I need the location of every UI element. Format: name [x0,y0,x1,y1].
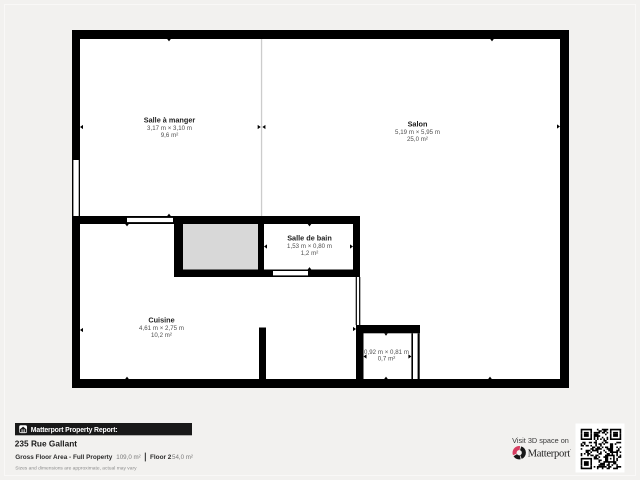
svg-text:10,2 m²: 10,2 m² [151,332,172,339]
svg-text:109,0 m²: 109,0 m² [116,454,140,461]
svg-text:0,7 m²: 0,7 m² [378,356,396,363]
svg-text:9,6 m²: 9,6 m² [161,132,179,139]
svg-text:Matterport Property Report:: Matterport Property Report: [31,427,118,434]
svg-text:5,19 m × 5,95 m: 5,19 m × 5,95 m [395,129,440,136]
svg-text:235 Rue Gallant: 235 Rue Gallant [15,438,77,448]
svg-text:25,0 m²: 25,0 m² [407,136,428,143]
svg-text:1,2 m²: 1,2 m² [301,250,319,257]
svg-text:54,0 m²: 54,0 m² [172,454,193,461]
svg-text:Cuisine: Cuisine [148,315,174,324]
svg-text:Matterport’: Matterport’ [528,448,572,460]
svg-text:Sizes and dimensions are appro: Sizes and dimensions are approximate, ac… [15,465,137,471]
svg-text:Salon: Salon [408,119,428,128]
svg-text:1,53 m × 0,80 m: 1,53 m × 0,80 m [287,243,332,250]
svg-text:3,17 m × 3,10 m: 3,17 m × 3,10 m [147,125,192,132]
svg-text:Floor 2: Floor 2 [150,454,172,461]
svg-text:Salle à manger: Salle à manger [144,116,196,125]
svg-text:Salle de bain: Salle de bain [287,234,332,243]
svg-text:4,61 m × 2,75 m: 4,61 m × 2,75 m [139,325,184,332]
svg-text:Gross Floor Area - Full Proper: Gross Floor Area - Full Property [15,454,113,461]
svg-text:Visit 3D space on: Visit 3D space on [512,436,569,445]
